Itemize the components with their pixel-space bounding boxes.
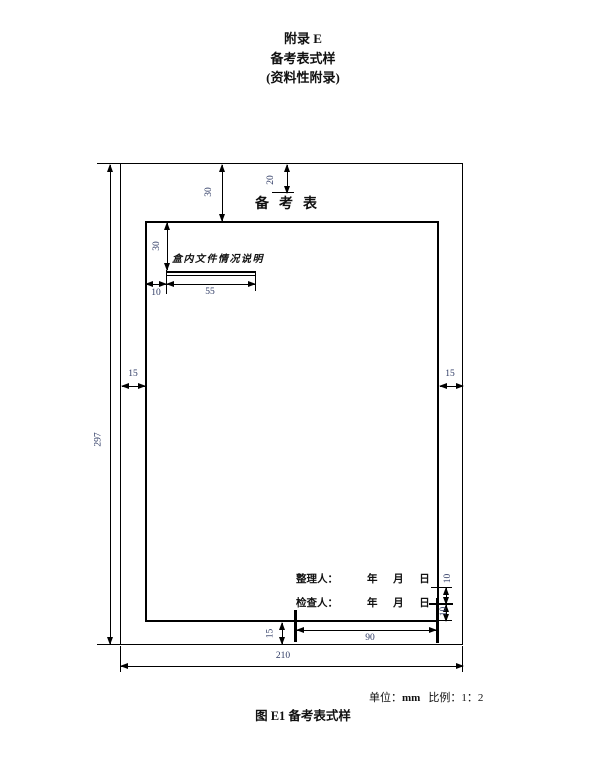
organizer-date: 年 月 日: [367, 571, 430, 586]
dimension-label-label-width: 55: [202, 287, 218, 298]
dimension-label-margin-bottom: 15: [265, 627, 278, 641]
unit-label: 单位：: [369, 692, 402, 704]
dimension-arrow-margin-right: [440, 386, 463, 387]
appendix-header: 附录 E 备考表式样 (资料性附录): [0, 29, 606, 88]
dimension-arrow-row-gap-upper: [446, 588, 447, 604]
dimension-label-page-height: 297: [93, 427, 106, 453]
document-page: 附录 E 备考表式样 (资料性附录) 297 30 20 备考表 30 盒内文件…: [0, 0, 606, 767]
dimension-arrow-margin-bottom: [282, 623, 283, 644]
dimension-arrow-label-indent: [146, 284, 166, 285]
double-rule-upper: [166, 271, 256, 274]
inspector-date: 年 月 日: [367, 595, 430, 610]
organizer-label: 整理人：: [296, 571, 338, 586]
dimension-label-margin-left: 15: [123, 369, 143, 380]
dimension-arrow-frame-to-label: [167, 223, 168, 270]
dimension-label-margin-right: 15: [440, 369, 460, 380]
dimension-arrow-page-height: [110, 165, 111, 644]
appendix-note: (资料性附录): [0, 68, 606, 88]
box-contents-label: 盒内文件情况说明: [172, 250, 264, 265]
table-frame-rect: [145, 221, 439, 622]
dimension-arrow-margin-left: [122, 386, 145, 387]
dimension-label-row-gap-lower: 10: [438, 605, 451, 618]
dimension-arrow-top-to-title: [287, 165, 288, 193]
inspector-label: 检查人：: [296, 595, 338, 610]
dimension-label-row-gap-upper: 10: [442, 572, 455, 585]
dimension-label-page-width: 210: [266, 651, 300, 662]
unit-value: mm: [402, 692, 420, 704]
table-title: 备考表: [255, 193, 327, 213]
scale-label: 比例：: [428, 692, 461, 704]
double-rule-lower: [166, 275, 256, 277]
scale-value: 1：2: [461, 692, 483, 704]
dimension-label-top-to-title: 20: [266, 168, 278, 192]
dimension-label-frame-to-label: 30: [152, 234, 164, 258]
figure-caption: 图 E1 备考表式样: [0, 705, 606, 724]
dimension-arrow-top-to-frame: [222, 165, 223, 221]
dimension-arrow-label-width: [167, 284, 255, 285]
dimension-label-label-indent: 10: [148, 288, 164, 299]
dimension-label-top-to-frame: 30: [204, 180, 216, 204]
dimension-arrow-signature-width: [297, 630, 436, 631]
appendix-subtitle: 备考表式样: [0, 49, 606, 69]
extension-line-signature-left: [294, 610, 297, 642]
dimension-label-signature-width: 90: [362, 633, 378, 644]
dimension-arrow-page-width: [121, 666, 463, 667]
appendix-title: 附录 E: [0, 29, 606, 49]
